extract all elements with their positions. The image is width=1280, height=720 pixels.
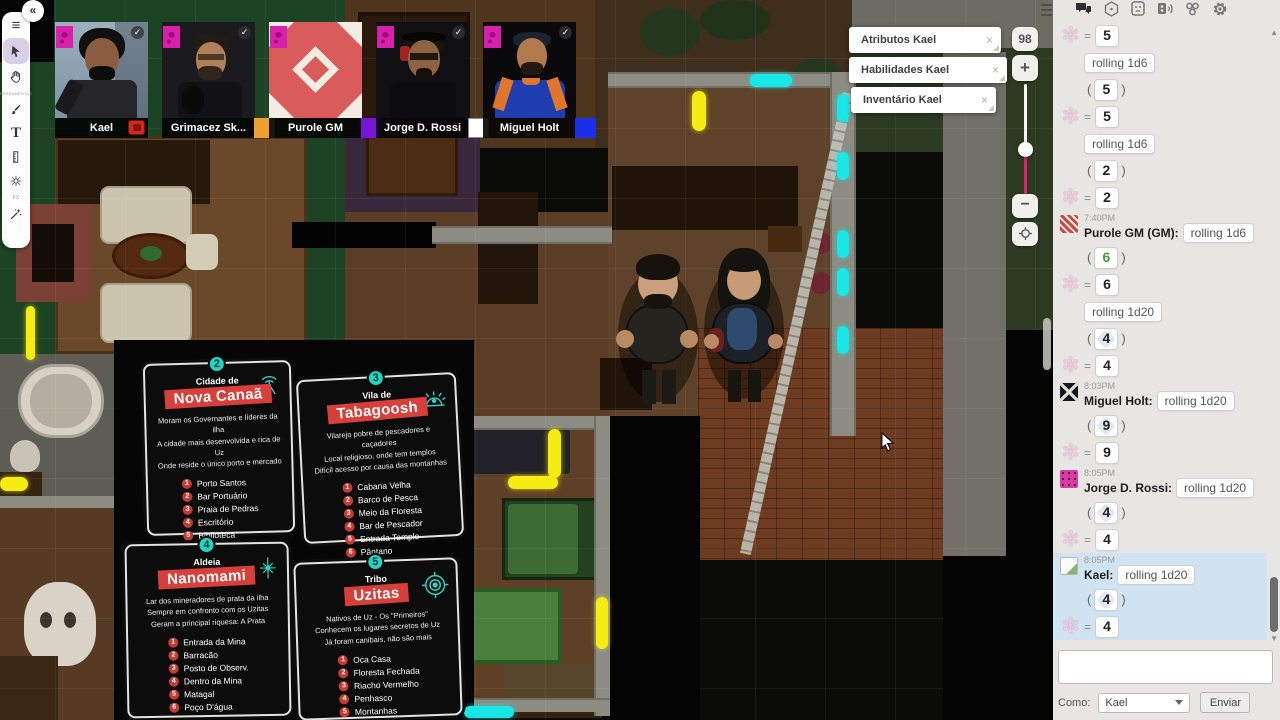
player-name: Grimacez Sk... (171, 122, 246, 134)
list-number-badge: 3 (183, 505, 193, 515)
card-number-badge: 3 (366, 369, 385, 388)
die-result: 4 (1094, 589, 1118, 611)
bush (640, 8, 700, 56)
fog-of-war (943, 556, 1053, 720)
list-number-badge: 1 (168, 637, 178, 647)
target-icon (420, 569, 451, 605)
roll-formula: rolling 1d6 (1183, 223, 1254, 243)
roll-flower-icon: ✻ (1057, 529, 1084, 551)
video-name-bar: Miguel Holt (483, 118, 576, 138)
list-number-badge: 4 (169, 676, 179, 686)
card-title: Tabagoosh (327, 397, 428, 425)
wall (608, 72, 854, 88)
door-highlight-cyan (750, 74, 792, 87)
chat-message: (4) (1057, 325, 1267, 352)
roll-total: 5 (1095, 106, 1119, 128)
location-card[interactable]: 2 Cidade de Nova Canaã Moram os Governan… (143, 360, 295, 536)
send-button[interactable]: Enviar (1200, 692, 1250, 713)
location-card[interactable]: 3 Vila de Tabagoosh Vilarejo pobre de pe… (296, 372, 464, 544)
light-highlight-yellow (692, 91, 706, 131)
collapse-sidebar-button[interactable]: « (22, 0, 44, 22)
video-chip[interactable]: ✓ Miguel Holt (483, 22, 576, 138)
card-list-item: 4 Dentro da Mina (169, 675, 249, 686)
card-number-badge: 4 (197, 536, 215, 554)
card-list: 1 Cabana Velha 2 Barco de Pesca 3 Meio d… (342, 476, 424, 561)
video-status-check-icon: ✓ (131, 26, 144, 39)
card-list-item: 5 Montanhas (340, 704, 421, 717)
video-feed[interactable]: ✓ (483, 22, 576, 118)
video-feed[interactable]: ✓ (162, 22, 255, 118)
chat-message: ✻=4 (1057, 613, 1267, 640)
card-list-item: 6 Pântano (345, 544, 424, 558)
list-number-badge: 3 (339, 681, 349, 691)
speak-as-select[interactable]: Kael (1098, 693, 1190, 713)
die-result: 4 (1094, 328, 1118, 350)
crosshair-icon (1019, 227, 1032, 240)
sheet-popup[interactable]: Atributos Kael × (849, 27, 1001, 53)
video-watermark-icon (163, 26, 180, 48)
list-number-badge: 5 (340, 707, 350, 717)
player-color-swatch (575, 118, 596, 138)
tab-settings[interactable] (1212, 1, 1228, 22)
wall (0, 496, 122, 508)
die-result: 5 (1094, 79, 1118, 101)
chat-message: (5) (1057, 76, 1267, 103)
player-color-swatch[interactable] (128, 120, 145, 135)
video-status-check-icon: ✓ (238, 26, 251, 39)
roll-total: 4 (1095, 616, 1119, 638)
card-list-item: 2 Floresta Fechada (338, 665, 419, 678)
chat-message: rolling 1d6 (1057, 49, 1267, 76)
highlighted-message-group: 8:05PM Kael:rolling 1d20(4)✻=4 (1053, 553, 1267, 640)
chat-sidebar: ▲ ✻=5rolling 1d6(5)✻=5rolling 1d6(2)✻=2 … (1053, 0, 1280, 720)
chat-message: ✻=4 (1057, 526, 1267, 553)
player-name: Kael (90, 122, 113, 134)
close-icon[interactable]: × (986, 33, 993, 47)
card-list-item: 2 Bar Portuário (182, 490, 258, 502)
character-token[interactable] (612, 252, 704, 414)
sender-name: Jorge D. Rossi: (1084, 481, 1172, 495)
chat-message: ✻=5 (1057, 103, 1267, 130)
grass (1006, 52, 1053, 332)
close-icon[interactable]: × (981, 93, 988, 107)
list-number-badge: 2 (338, 668, 348, 678)
chat-avatar (1060, 383, 1078, 401)
brush-icon (9, 102, 23, 116)
card-description: Moram os Governantes e líderes da ilhaA … (146, 410, 292, 472)
chat-avatar (1060, 557, 1078, 575)
chevron-down-icon (1175, 700, 1183, 705)
armchair (186, 234, 218, 270)
speak-as-label: Como: (1058, 697, 1090, 709)
card-list-item: 1 Cabana Velha (342, 479, 421, 493)
light-highlight-yellow (0, 477, 28, 491)
list-number-badge: 4 (183, 518, 193, 528)
roll-flower-icon: ✻ (1057, 25, 1084, 47)
card-number-badge: 2 (208, 355, 226, 373)
star-icon (255, 554, 282, 587)
roll-formula: rolling 1d20 (1157, 391, 1235, 411)
video-chip[interactable]: ✓ Kael (55, 22, 148, 138)
video-feed[interactable]: ✓ (376, 22, 469, 118)
fx-section-label: FX (13, 195, 19, 201)
chat-message: 7:40PM Purole GM (GM):rolling 1d6 (1057, 211, 1267, 244)
close-icon[interactable]: × (992, 63, 999, 77)
cursor-arrow-icon (9, 44, 23, 58)
card-list-item: 3 Praia de Pedras (183, 503, 259, 515)
wall (432, 226, 612, 244)
card-list-item: 5 Matagal (169, 688, 249, 699)
tools-section-label: FERRAMENTAS (0, 91, 32, 96)
roll-formula: rolling 1d20 (1084, 302, 1162, 322)
die-result: 4 (1094, 502, 1118, 524)
bookshelf (612, 166, 798, 230)
zoom-slider-thumb[interactable] (1018, 142, 1033, 157)
chat-message: ✻=5 (1057, 22, 1267, 49)
video-chip[interactable]: Purole GM (269, 22, 362, 138)
chat-scrollbar-thumb[interactable] (1270, 577, 1278, 632)
chat-input[interactable] (1058, 650, 1273, 684)
card-description: Nativos de Uz - Os "Primeiros"Conhecem o… (297, 607, 459, 649)
card-list-item: 3 Riacho Vermelho (339, 678, 420, 691)
sender-name: Purole GM (GM): (1084, 226, 1179, 240)
door-highlight-cyan (837, 326, 849, 354)
chat-avatar (1060, 470, 1078, 488)
video-watermark-icon (377, 26, 394, 48)
bed-duvet (508, 504, 578, 574)
roll-total: 6 (1095, 274, 1119, 296)
sender-name: Kael: (1084, 568, 1113, 582)
chat-message: ✻=4 (1057, 352, 1267, 379)
roll-flower-icon: ✻ (1057, 187, 1084, 209)
roll-flower-icon: ✻ (1057, 106, 1084, 128)
roll-total: 4 (1095, 355, 1119, 377)
card-list-item: 2 Barco de Pesca (343, 492, 422, 506)
wall (594, 416, 610, 716)
character-token[interactable] (700, 248, 788, 410)
light-highlight-yellow (548, 429, 561, 478)
card-list-item: 4 Escritório (183, 516, 259, 528)
resize-handle[interactable] (988, 105, 994, 111)
card-title: Nanomami (158, 565, 256, 589)
roll-formula: rolling 1d6 (1084, 134, 1155, 154)
chat-message: (2) (1057, 157, 1267, 184)
list-number-badge: 4 (339, 694, 349, 704)
light-highlight-yellow (596, 597, 608, 649)
card-list-item: 2 Barracão (168, 649, 248, 660)
roll-flower-icon: ✻ (1057, 355, 1084, 377)
die-result: 2 (1094, 160, 1118, 182)
popup-title: Inventário Kael (863, 94, 975, 106)
skull-eye (64, 612, 76, 628)
roll-flower-icon: ✻ (1057, 274, 1084, 296)
map-menu-icon[interactable] (1041, 4, 1052, 17)
chat-log[interactable]: ✻=5rolling 1d6(5)✻=5rolling 1d6(2)✻=2 7:… (1053, 22, 1267, 642)
measure-tool-button[interactable] (3, 146, 29, 168)
tab-chat[interactable] (1075, 2, 1092, 21)
card-description: Vilarejo pobre de pescadores e caçadores… (300, 422, 459, 478)
tab-collections[interactable] (1185, 2, 1200, 21)
card-list-item: 3 Meio da Floresta (343, 505, 422, 519)
chat-message: 8:05PM Jorge D. Rossi:rolling 1d20 (1057, 466, 1267, 499)
card-description: Lar dos mineradores de prata da ilhaSemp… (127, 591, 288, 630)
zoom-slider-track[interactable] (1024, 84, 1027, 144)
chat-message: ✻=2 (1057, 184, 1267, 211)
die-result: 6 (1094, 247, 1118, 269)
skull-eye (40, 612, 52, 628)
door-highlight-cyan (837, 268, 849, 296)
card-list-item: 1 Oca Casa (338, 652, 419, 665)
roll-formula: rolling 1d20 (1176, 478, 1254, 498)
zoom-focus-button[interactable] (1012, 222, 1038, 246)
list-number-badge: 3 (169, 663, 179, 673)
skull-decor (24, 582, 96, 666)
location-card[interactable]: 5 Tribo Uzitas Nativos de Uz - Os "Prime… (293, 557, 462, 720)
plant (140, 246, 162, 261)
wall (458, 416, 610, 430)
roll-formula: rolling 1d6 (1084, 53, 1155, 73)
timestamp: 8:03PM (1084, 381, 1235, 391)
sheet-popup[interactable]: Habilidades Kael × (849, 57, 1007, 83)
roll-total: 9 (1095, 442, 1119, 464)
card-list-item: 3 Posto de Observ. (169, 662, 249, 673)
fog-tool-button[interactable] (3, 170, 29, 192)
mouse-cursor (880, 432, 896, 452)
chat-message: ✻=6 (1057, 271, 1267, 298)
resize-handle[interactable] (999, 75, 1005, 81)
roll-total: 5 (1095, 25, 1119, 47)
chat-avatar (1060, 215, 1078, 233)
card-list: 1 Oca Casa 2 Floresta Fechada 3 Riacho V… (338, 649, 422, 720)
path-stone (943, 52, 1011, 562)
door-highlight-cyan (837, 152, 849, 180)
video-watermark-icon (56, 26, 73, 48)
door-highlight-cyan (837, 230, 849, 258)
video-name-bar: Purole GM (269, 118, 362, 138)
fog-of-war (610, 416, 700, 720)
text-tool-button[interactable]: T (3, 122, 29, 144)
list-number-badge: 2 (182, 492, 192, 502)
roll-flower-icon: ✻ (1057, 442, 1084, 464)
tab-journal[interactable] (1131, 1, 1145, 21)
chat-scroll-down-icon[interactable]: ▼ (1270, 634, 1278, 643)
toilet (10, 440, 40, 472)
tab-dice[interactable] (1104, 1, 1119, 22)
list-number-badge: 5 (345, 534, 356, 545)
sender-name: Miguel Holt: (1084, 394, 1153, 408)
zoom-level-badge: 98 (1012, 27, 1038, 51)
video-watermark-icon (484, 26, 501, 48)
fireplace-hearth (32, 224, 74, 282)
door-highlight-cyan (837, 94, 849, 122)
timestamp: 8:05PM (1084, 468, 1254, 478)
bookshelf (478, 192, 538, 304)
chat-message: 8:05PM Kael:rolling 1d20 (1057, 553, 1267, 586)
bathtub-water (30, 374, 92, 428)
bush (700, 0, 770, 40)
zoom-in-button[interactable]: + (1012, 55, 1038, 81)
fx-tool-button[interactable] (3, 203, 29, 225)
chat-message: (4) (1057, 586, 1267, 613)
list-number-badge: 1 (338, 655, 348, 665)
video-name-bar: Jorge D. Rossi (376, 118, 469, 138)
chat-message: (6) (1057, 244, 1267, 271)
list-number-badge: 3 (343, 508, 354, 519)
card-list-item: 4 Bar de Pescador (344, 518, 423, 532)
chat-scroll-up-icon[interactable]: ▲ (1270, 28, 1278, 37)
video-watermark-icon (270, 26, 287, 48)
sidebar-tabs (1053, 0, 1280, 22)
card-title: Uzitas (344, 583, 409, 606)
card-list-item: 1 Entrada da Mina (168, 636, 248, 647)
timestamp: 8:05PM (1084, 555, 1195, 565)
roll-flower-icon: ✻ (1057, 616, 1084, 638)
player-name: Purole GM (288, 122, 343, 134)
list-number-badge: 6 (345, 547, 356, 558)
chat-message: rolling 1d20 (1057, 298, 1267, 325)
die-result: 9 (1094, 415, 1118, 437)
sofa (100, 283, 192, 343)
timestamp: 7:40PM (1084, 213, 1254, 223)
player-name: Jorge D. Rossi (384, 122, 461, 134)
video-chip[interactable]: ✓ Grimacez Sk... (162, 22, 255, 138)
tab-jukebox[interactable] (1157, 1, 1173, 21)
video-name-bar: Kael (55, 118, 148, 138)
list-number-badge: 5 (169, 689, 179, 699)
fog (292, 222, 436, 248)
player-name: Miguel Holt (500, 122, 559, 134)
list-number-badge: 5 (183, 531, 193, 541)
chat-message: (4) (1057, 499, 1267, 526)
door-highlight-cyan (464, 706, 514, 718)
video-status-check-icon: ✓ (559, 26, 572, 39)
hand-icon (9, 70, 23, 84)
chat-message: (9) (1057, 412, 1267, 439)
video-status-check-icon: ✓ (452, 26, 465, 39)
roll-total: 4 (1095, 529, 1119, 551)
game-map-canvas[interactable]: 2 Cidade de Nova Canaã Moram os Governan… (0, 0, 1053, 720)
list-number-badge: 4 (344, 521, 355, 532)
table (366, 130, 458, 196)
card-list: 1 Entrada da Mina 2 Barracão 3 Posto de … (168, 633, 249, 715)
roll-total: 2 (1095, 187, 1119, 209)
draw-tool-button[interactable] (3, 98, 29, 120)
dresser (0, 656, 58, 720)
light-highlight-yellow (508, 476, 558, 489)
card-number-badge: 5 (366, 553, 385, 572)
map-scrollbar-thumb[interactable] (1043, 318, 1051, 370)
select-tool-button[interactable] (3, 38, 29, 64)
resize-handle[interactable] (993, 45, 999, 51)
popup-title: Habilidades Kael (861, 64, 986, 76)
wand-icon (9, 207, 23, 221)
card-list-item: 5 Biblioteca (183, 529, 259, 541)
ruler-icon (9, 150, 23, 164)
zoom-out-button[interactable]: − (1012, 194, 1038, 218)
chat-message: ✻=9 (1057, 439, 1267, 466)
web-icon (9, 174, 23, 188)
list-number-badge: 2 (168, 650, 178, 660)
roll-formula: rolling 1d20 (1117, 565, 1195, 585)
popup-title: Atributos Kael (861, 34, 980, 46)
card-list-item: 6 Poço D'água (169, 701, 249, 712)
rug-green (464, 588, 562, 664)
chat-send-row: Como: Kael Enviar (1058, 692, 1276, 713)
chat-message: rolling 1d6 (1057, 130, 1267, 157)
video-feed[interactable] (269, 22, 362, 118)
video-name-bar: Grimacez Sk... (162, 118, 255, 138)
card-list-item: 1 Porto Santos (182, 477, 258, 489)
location-card[interactable]: 4 Aldeia Nanomami Lar dos mineradores de… (124, 542, 291, 719)
list-number-badge: 2 (343, 495, 354, 506)
list-number-badge: 1 (342, 482, 353, 493)
card-list-item: 4 Penhasco (339, 691, 420, 704)
toolbar: ≡ FERRAMENTAS T FX (2, 12, 30, 248)
list-number-badge: 1 (182, 479, 192, 489)
card-list-item: 5 Entrada Templo (345, 531, 424, 545)
roll20-app: 2 Cidade de Nova Canaã Moram os Governan… (0, 0, 1280, 720)
light-highlight-yellow (26, 306, 35, 360)
list-number-badge: 6 (169, 702, 179, 712)
chat-message: 8:03PM Miguel Holt:rolling 1d20 (1057, 379, 1267, 412)
video-chip[interactable]: ✓ Jorge D. Rossi (376, 22, 469, 138)
sheet-popup[interactable]: Inventário Kael × (851, 87, 996, 113)
video-feed[interactable]: ✓ (55, 22, 148, 118)
pan-tool-button[interactable] (3, 66, 29, 88)
